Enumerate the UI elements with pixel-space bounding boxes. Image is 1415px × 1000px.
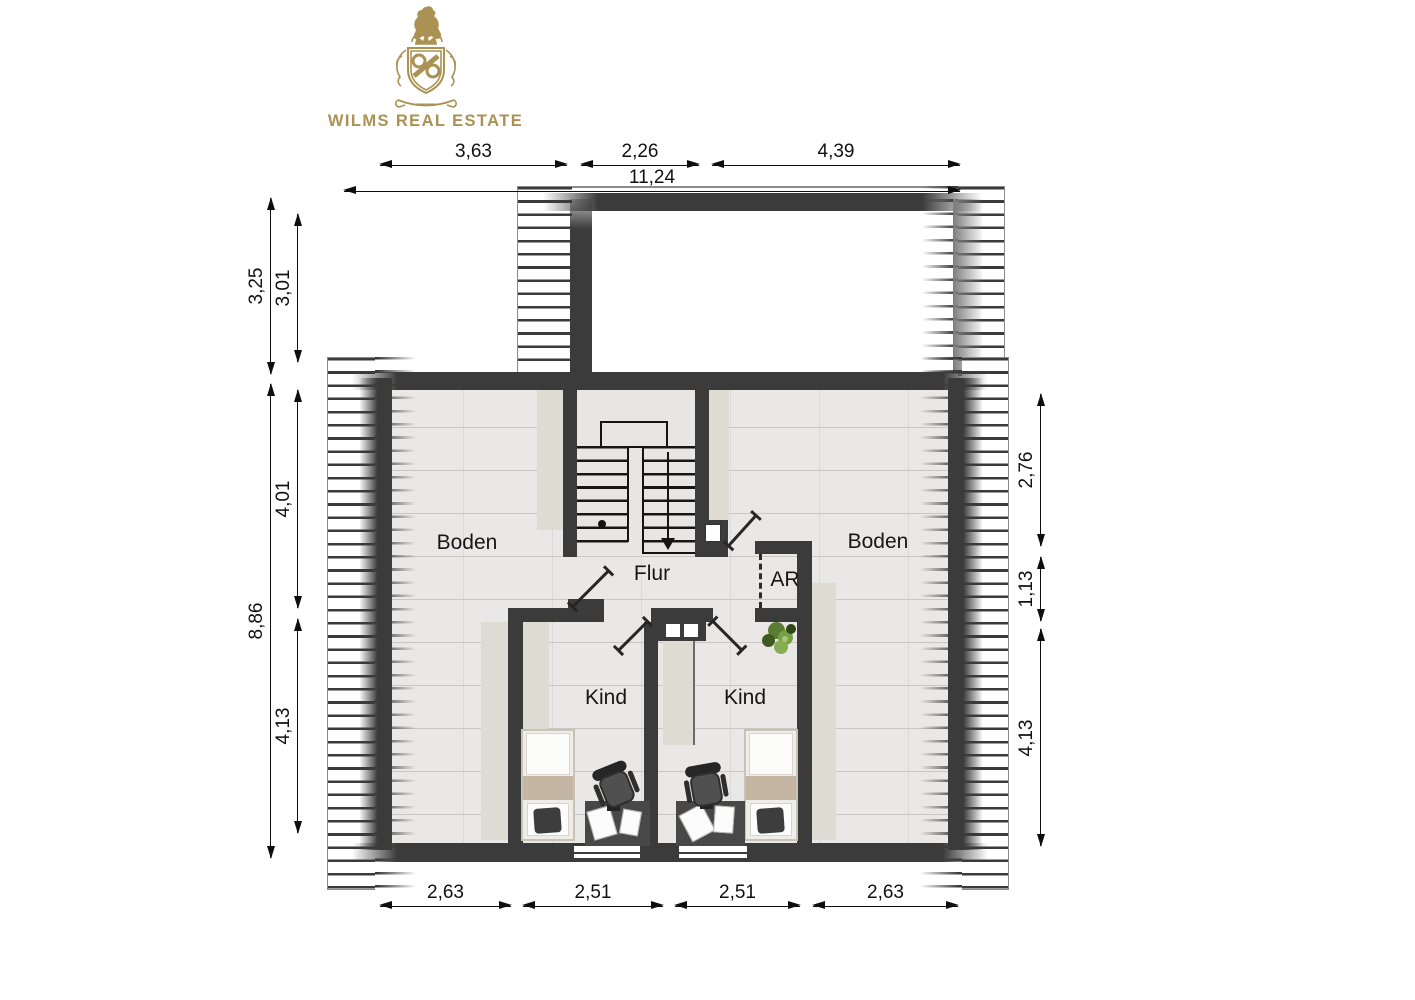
dim-bottom-3: 2,51 [675,906,800,907]
dim-left-upper-outer: 3,25 [270,198,271,374]
room-label-kind-right: Kind [695,686,795,710]
bed-kind-left [521,729,575,841]
bed-cushion [756,807,785,834]
knee-wall-boden-left-upper [537,390,565,530]
door-ar-dashed [759,554,762,608]
stair-divider-right-line [642,446,645,554]
wall-top [352,372,988,390]
dim-top-1: 3,63 [380,165,567,166]
bed-kind-right [744,729,798,841]
office-chair-kind-right [681,761,730,814]
wall-bottom [352,843,988,862]
dim-top-total: 11,24 [344,191,960,192]
plant-icon [762,622,798,658]
dormer-wall-left [570,199,592,374]
wall-left [360,378,392,850]
stair-wall-right [695,383,709,524]
room-label-boden-right: Boden [818,530,938,554]
chimney-flue-left [666,624,680,638]
window-glazing-line [679,852,747,854]
paper-icon [713,805,735,833]
room-label-flur: Flur [612,562,692,586]
dim-top-3: 4,39 [712,165,960,166]
bed-blanket [746,776,796,800]
knee-wall-boden-right-lower [812,583,836,840]
dim-left-1: 4,01 [297,390,298,608]
window-glazing-line [574,852,640,854]
dim-left-total: 8,86 [270,384,271,858]
knee-wall-kind-right [663,638,695,745]
stair-start-dot [598,520,606,528]
dim-left-upper-inner: 3,01 [297,214,298,362]
stair-divider-left-line [627,446,630,542]
dim-bottom-1: 2,63 [380,906,511,907]
bed-blanket [523,776,573,800]
knee-wall-boden-right-upper [707,390,729,522]
door-opening-boden-right [705,524,721,542]
dormer-wall-top [543,193,982,211]
knee-wall-boden-left-lower [481,622,509,840]
dormer-wall-right [953,199,982,374]
room-label-ar: AR [765,568,805,592]
knee-wall-kind-left [523,622,549,730]
dim-right-3: 4,13 [1040,629,1041,846]
dim-bottom-4: 2,63 [813,906,958,907]
room-label-kind-left: Kind [556,686,656,710]
stair-flight-left [577,446,628,543]
chimney-flue-right [684,624,698,638]
window-kind-right [679,844,747,860]
bed-pillow [749,733,793,775]
stair-direction-arrowhead [661,538,675,550]
bed-pillow [526,733,570,775]
roof-hatch-dormer-left [517,186,572,376]
dim-bottom-2: 2,51 [523,906,663,907]
window-kind-left [574,844,640,860]
dim-right-2: 1,13 [1040,557,1041,621]
brand-name: WILMS REAL ESTATE [318,112,533,131]
bed-cushion [533,807,562,834]
wall-right [948,378,982,850]
chair-seat [689,771,724,809]
stair-bottom-line [644,552,697,555]
dim-top-2: 2,26 [581,165,699,166]
stair-direction-line [667,452,670,540]
dim-right-1: 2,76 [1040,394,1041,546]
wall-kind-left-north [508,608,604,622]
dim-left-2: 4,13 [297,619,298,833]
room-label-boden-left: Boden [407,531,527,555]
stair-landing [600,421,668,448]
wall-chimney-bar [651,608,713,622]
brand-crest-icon [384,4,468,112]
floorplan-page: WILMS REAL ESTATE [0,0,1415,1000]
stair-wall-left [563,383,577,557]
